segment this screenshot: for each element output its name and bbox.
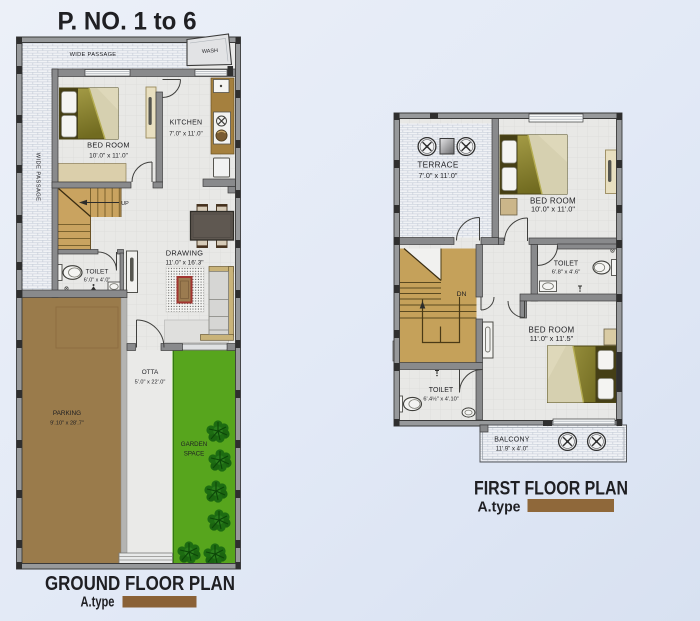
- svg-text:A.type: A.type: [478, 499, 521, 516]
- svg-text:6'.8" x 4'.6": 6'.8" x 4'.6": [552, 270, 581, 276]
- svg-text:WIDE PASSAGE: WIDE PASSAGE: [70, 52, 117, 58]
- svg-text:TOILET: TOILET: [429, 387, 454, 394]
- svg-text:10'.0" x 11'.0": 10'.0" x 11'.0": [531, 205, 575, 214]
- svg-text:GROUND FLOOR PLAN: GROUND FLOOR PLAN: [45, 573, 235, 595]
- svg-text:SPACE: SPACE: [184, 451, 205, 458]
- svg-text:DRAWING: DRAWING: [166, 249, 204, 258]
- svg-text:6'.4½" x 4'.10": 6'.4½" x 4'.10": [423, 396, 458, 403]
- svg-text:5'.0" x 22'.0": 5'.0" x 22'.0": [135, 380, 166, 386]
- svg-text:11'.0" x 16'.3": 11'.0" x 16'.3": [165, 260, 203, 267]
- svg-text:11'.9" x 4'.0": 11'.9" x 4'.0": [496, 447, 528, 453]
- svg-text:FIRST FLOOR PLAN: FIRST FLOOR PLAN: [474, 478, 628, 500]
- svg-text:9'.10" x 28'.7": 9'.10" x 28'.7": [50, 421, 84, 427]
- svg-text:TOILET: TOILET: [86, 269, 109, 276]
- svg-text:11'.0" x 11'.5": 11'.0" x 11'.5": [530, 334, 574, 343]
- svg-text:WASH: WASH: [202, 48, 218, 55]
- svg-text:KITCHEN: KITCHEN: [170, 120, 203, 127]
- svg-text:7'.0" x 11'.0": 7'.0" x 11'.0": [169, 131, 202, 138]
- svg-text:TOILET: TOILET: [554, 261, 579, 268]
- svg-text:OTTA: OTTA: [142, 369, 159, 376]
- svg-text:DN: DN: [457, 291, 467, 298]
- svg-text:P. NO. 1 to 6: P. NO. 1 to 6: [58, 8, 197, 36]
- svg-text:6'.0" x 4'.0": 6'.0" x 4'.0": [84, 278, 111, 284]
- svg-text:BED ROOM: BED ROOM: [87, 141, 130, 150]
- svg-text:PARKING: PARKING: [53, 410, 81, 417]
- svg-text:BALCONY: BALCONY: [494, 437, 530, 444]
- svg-text:UP: UP: [121, 201, 129, 207]
- svg-text:TERRACE: TERRACE: [417, 161, 458, 170]
- svg-text:WIDE PASSAGE: WIDE PASSAGE: [35, 153, 41, 202]
- svg-text:A.type: A.type: [81, 595, 115, 611]
- svg-text:GARDEN: GARDEN: [181, 441, 207, 448]
- svg-text:7'.0" x 11'.0": 7'.0" x 11'.0": [419, 171, 458, 180]
- svg-text:10'.0" x 11'.0": 10'.0" x 11'.0": [89, 153, 128, 160]
